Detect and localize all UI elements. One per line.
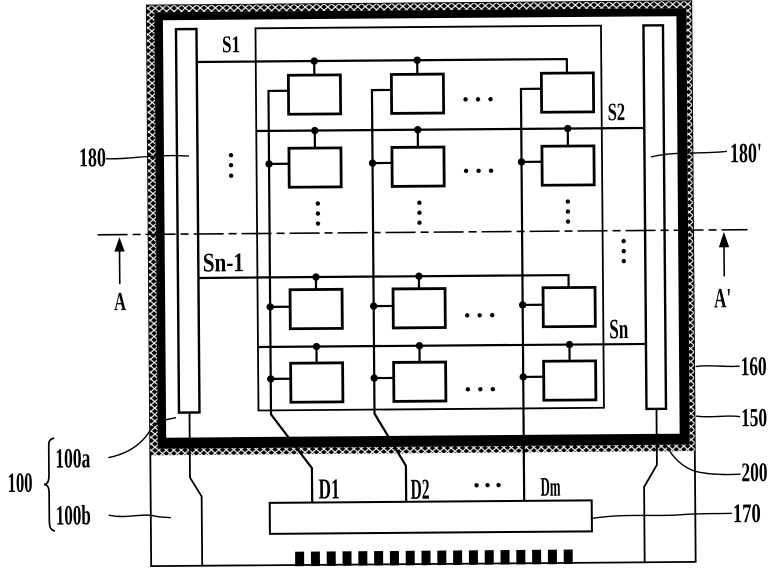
svg-text:Sn: Sn [609,314,628,345]
svg-text:100a: 100a [55,443,90,474]
svg-text:Dm: Dm [540,472,560,502]
svg-text:150: 150 [741,403,767,432]
svg-text:200: 200 [741,457,767,487]
svg-text:100: 100 [7,468,32,499]
svg-text:170: 170 [733,498,761,528]
svg-text:180': 180' [730,138,762,169]
svg-text:160: 160 [741,351,767,381]
svg-text:A': A' [714,283,731,314]
svg-text:S1: S1 [222,32,240,58]
svg-text:D1: D1 [318,473,339,505]
svg-text:Sn-1: Sn-1 [203,247,244,277]
svg-text:D2: D2 [410,474,429,506]
svg-text:S2: S2 [608,99,626,126]
svg-text:100b: 100b [56,500,91,531]
svg-text:180: 180 [79,142,106,172]
svg-text:A: A [114,287,126,316]
